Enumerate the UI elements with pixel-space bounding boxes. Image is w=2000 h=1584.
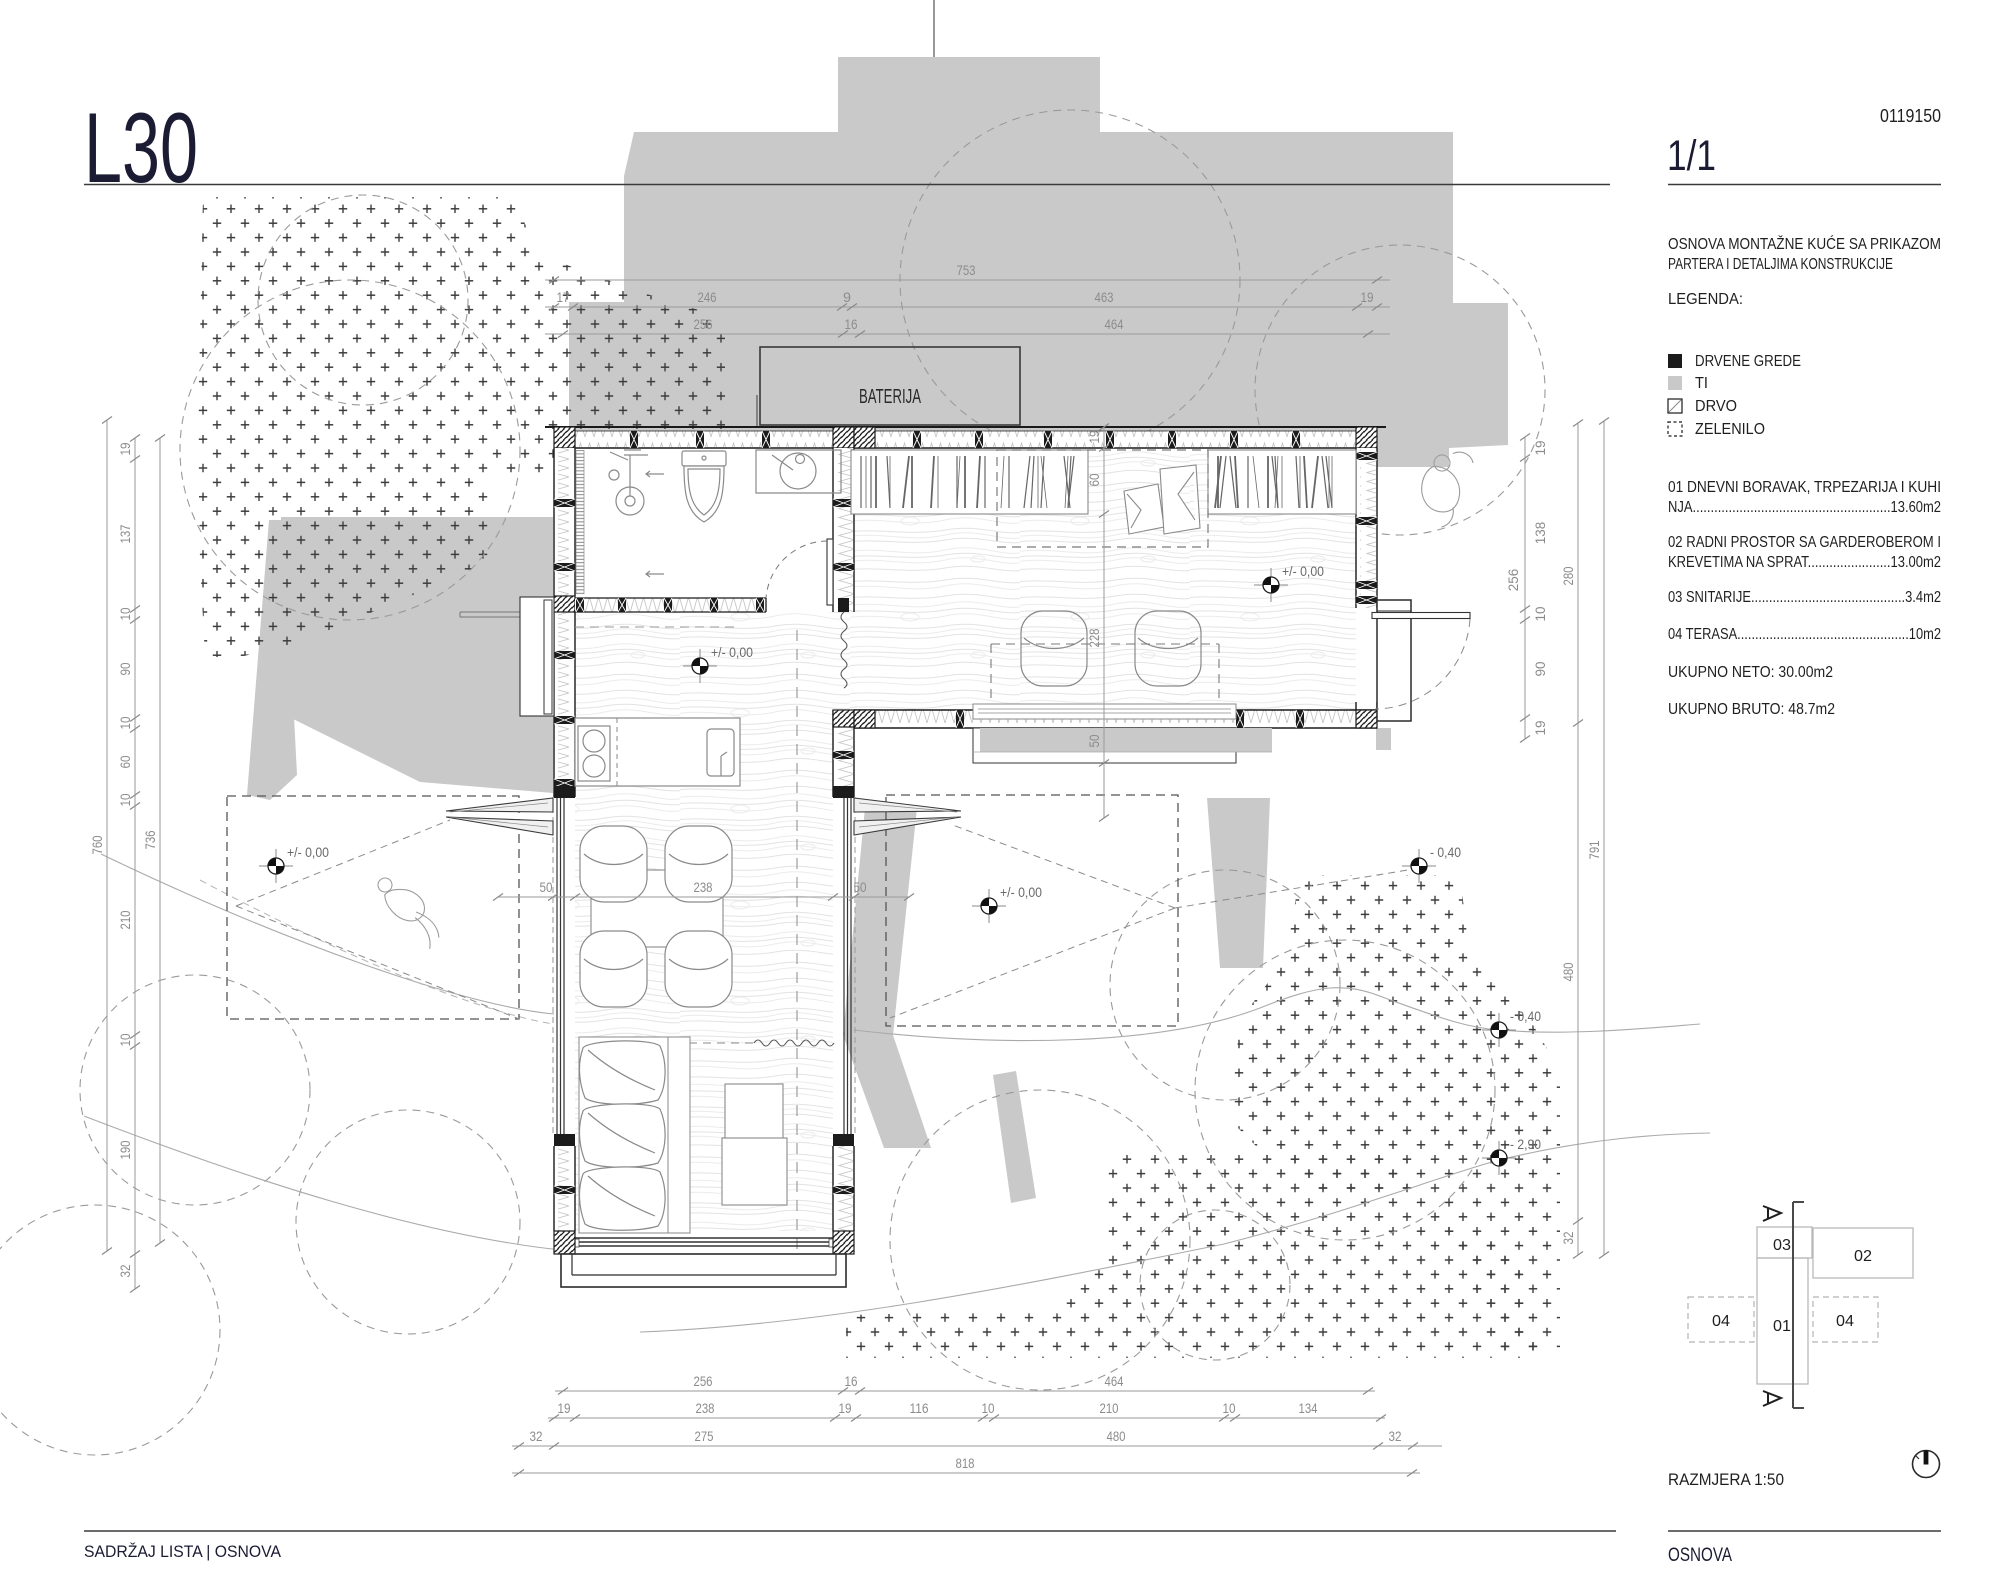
svg-text:50: 50 bbox=[540, 880, 553, 895]
svg-text:10: 10 bbox=[982, 1401, 995, 1416]
svg-text:736: 736 bbox=[143, 831, 158, 850]
svg-text:10: 10 bbox=[118, 608, 133, 621]
svg-text:+/- 0,00: +/- 0,00 bbox=[711, 645, 753, 660]
svg-text:03: 03 bbox=[1773, 1237, 1791, 1254]
svg-text:280: 280 bbox=[1561, 567, 1576, 586]
svg-text:238: 238 bbox=[696, 1401, 715, 1416]
svg-text:UKUPNO NETO: 30.00m2: UKUPNO NETO: 30.00m2 bbox=[1668, 664, 1833, 681]
svg-text:50: 50 bbox=[854, 880, 867, 895]
svg-text:SADRŽAJ LISTA | OSNOVA: SADRŽAJ LISTA | OSNOVA bbox=[84, 1542, 282, 1561]
svg-text:04: 04 bbox=[1712, 1313, 1730, 1330]
svg-text:- 0,40: - 0,40 bbox=[1510, 1009, 1541, 1024]
svg-text:60: 60 bbox=[1087, 474, 1102, 487]
svg-text:753: 753 bbox=[957, 263, 976, 278]
svg-text:10: 10 bbox=[118, 717, 133, 730]
svg-text:464: 464 bbox=[1105, 317, 1124, 332]
svg-text:16: 16 bbox=[845, 317, 858, 332]
svg-text:60: 60 bbox=[118, 756, 133, 769]
svg-text:DRVENE GREDE: DRVENE GREDE bbox=[1695, 353, 1801, 370]
svg-text:- 0,40: - 0,40 bbox=[1430, 845, 1461, 860]
svg-text:760: 760 bbox=[90, 836, 105, 855]
svg-text:19: 19 bbox=[1533, 720, 1548, 735]
svg-text:KREVETIMA NA SPRAT............: KREVETIMA NA SPRAT......................… bbox=[1668, 554, 1941, 571]
svg-text:228: 228 bbox=[1087, 629, 1102, 648]
svg-text:256: 256 bbox=[1506, 569, 1521, 592]
svg-text:01 DNEVNI BORAVAK, TRPEZARIJA: 01 DNEVNI BORAVAK, TRPEZARIJA I KUHI bbox=[1668, 479, 1941, 496]
svg-text:OSNOVA MONTAŽNE KUĆE SA PRIKAZ: OSNOVA MONTAŽNE KUĆE SA PRIKAZOM bbox=[1668, 234, 1941, 253]
svg-text:19: 19 bbox=[1087, 431, 1102, 444]
svg-text:BATERIJA: BATERIJA bbox=[859, 386, 921, 408]
svg-text:210: 210 bbox=[118, 911, 133, 930]
svg-text:90: 90 bbox=[1533, 661, 1548, 676]
svg-text:1/1: 1/1 bbox=[1667, 132, 1716, 180]
svg-text:UKUPNO BRUTO: 48.7m2: UKUPNO BRUTO: 48.7m2 bbox=[1668, 701, 1835, 718]
svg-text:02: 02 bbox=[1854, 1248, 1872, 1265]
svg-text:818: 818 bbox=[956, 1456, 975, 1471]
svg-text:RAZMJERA 1:50: RAZMJERA 1:50 bbox=[1668, 1470, 1784, 1489]
svg-text:- 2,90: - 2,90 bbox=[1510, 1137, 1541, 1152]
svg-text:L30: L30 bbox=[84, 92, 198, 203]
svg-text:32: 32 bbox=[118, 1265, 133, 1278]
svg-text:210: 210 bbox=[1100, 1401, 1119, 1416]
svg-text:19: 19 bbox=[118, 443, 133, 456]
svg-text:10: 10 bbox=[1223, 1401, 1236, 1416]
svg-text:463: 463 bbox=[1095, 290, 1114, 305]
svg-text:+/- 0,00: +/- 0,00 bbox=[1000, 885, 1042, 900]
svg-text:32: 32 bbox=[530, 1429, 543, 1444]
svg-text:256: 256 bbox=[694, 317, 713, 332]
svg-text:50: 50 bbox=[1087, 735, 1102, 748]
svg-text:OSNOVA: OSNOVA bbox=[1668, 1545, 1732, 1566]
svg-text:480: 480 bbox=[1107, 1429, 1126, 1444]
svg-text:19: 19 bbox=[839, 1401, 852, 1416]
svg-text:TI: TI bbox=[1695, 375, 1708, 392]
svg-text:02 RADNI PROSTOR SA GARDEROBER: 02 RADNI PROSTOR SA GARDEROBEROM I bbox=[1668, 534, 1941, 551]
svg-text:256: 256 bbox=[694, 1374, 713, 1389]
svg-text:ZELENILO: ZELENILO bbox=[1695, 421, 1765, 438]
svg-text:+/- 0,00: +/- 0,00 bbox=[287, 845, 329, 860]
svg-text:238: 238 bbox=[694, 880, 713, 895]
svg-text:275: 275 bbox=[695, 1429, 714, 1444]
svg-text:10: 10 bbox=[1533, 606, 1548, 621]
svg-text:32: 32 bbox=[1561, 1232, 1576, 1245]
svg-text:9: 9 bbox=[843, 290, 851, 305]
svg-text:138: 138 bbox=[1533, 522, 1548, 545]
svg-text:19: 19 bbox=[1361, 290, 1374, 305]
svg-text:01: 01 bbox=[1773, 1318, 1791, 1335]
svg-text:791: 791 bbox=[1587, 841, 1602, 860]
svg-text:16: 16 bbox=[845, 1374, 858, 1389]
svg-text:116: 116 bbox=[910, 1401, 929, 1416]
svg-text:134: 134 bbox=[1299, 1401, 1318, 1416]
svg-text:190: 190 bbox=[118, 1141, 133, 1160]
svg-text:LEGENDA:: LEGENDA: bbox=[1668, 291, 1743, 308]
svg-text:10: 10 bbox=[118, 794, 133, 807]
svg-text:04 TERASA.....................: 04 TERASA...............................… bbox=[1668, 626, 1941, 643]
svg-text:10: 10 bbox=[118, 1034, 133, 1047]
svg-text:DRVO: DRVO bbox=[1695, 398, 1737, 415]
svg-text:19: 19 bbox=[1533, 440, 1548, 455]
svg-text:246: 246 bbox=[698, 290, 717, 305]
svg-text:+/- 0,00: +/- 0,00 bbox=[1282, 564, 1324, 579]
svg-text:137: 137 bbox=[118, 525, 133, 544]
svg-text:17: 17 bbox=[557, 290, 570, 305]
svg-text:03 SNITARIJE..................: 03 SNITARIJE............................… bbox=[1668, 589, 1941, 606]
svg-text:0119150: 0119150 bbox=[1880, 106, 1941, 126]
svg-text:PARTERA I DETALJIMA KONSTRUKCI: PARTERA I DETALJIMA KONSTRUKCIJE bbox=[1668, 256, 1893, 273]
svg-text:464: 464 bbox=[1105, 1374, 1124, 1389]
svg-text:480: 480 bbox=[1561, 963, 1576, 982]
svg-text:19: 19 bbox=[558, 1401, 571, 1416]
svg-text:04: 04 bbox=[1836, 1313, 1854, 1330]
svg-text:32: 32 bbox=[1389, 1429, 1402, 1444]
svg-text:NJA...........................: NJA.....................................… bbox=[1668, 499, 1941, 516]
svg-text:90: 90 bbox=[118, 663, 133, 676]
